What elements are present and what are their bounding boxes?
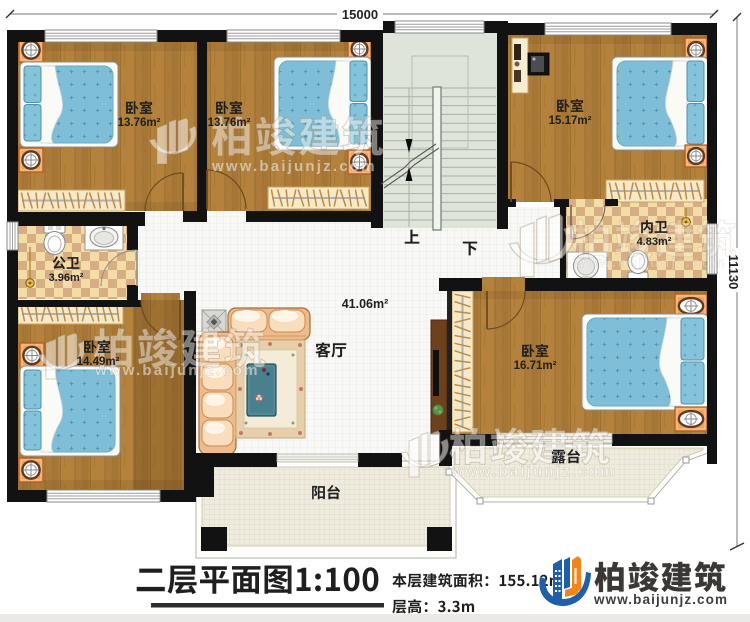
- svg-text:www.baijunjz.com: www.baijunjz.com: [211, 158, 377, 175]
- svg-text:15.17m²: 15.17m²: [549, 115, 592, 127]
- svg-text:16.71m²: 16.71m²: [514, 360, 557, 372]
- svg-text:www.baijunjz.com: www.baijunjz.com: [573, 254, 727, 270]
- svg-text:13.76m²: 13.76m²: [208, 117, 251, 129]
- svg-text:www.baijunjz.com: www.baijunjz.com: [450, 463, 616, 480]
- svg-text:11130: 11130: [726, 255, 741, 290]
- svg-text:3.96m²: 3.96m²: [49, 272, 84, 284]
- svg-text:14.49m²: 14.49m²: [77, 356, 120, 368]
- svg-text:www.baijunjz.com: www.baijunjz.com: [593, 592, 728, 607]
- svg-text:13.76m²: 13.76m²: [118, 117, 161, 129]
- svg-text:15000: 15000: [342, 7, 378, 22]
- svg-text:41.06m²: 41.06m²: [342, 297, 389, 311]
- svg-text:4.83m²: 4.83m²: [637, 236, 672, 248]
